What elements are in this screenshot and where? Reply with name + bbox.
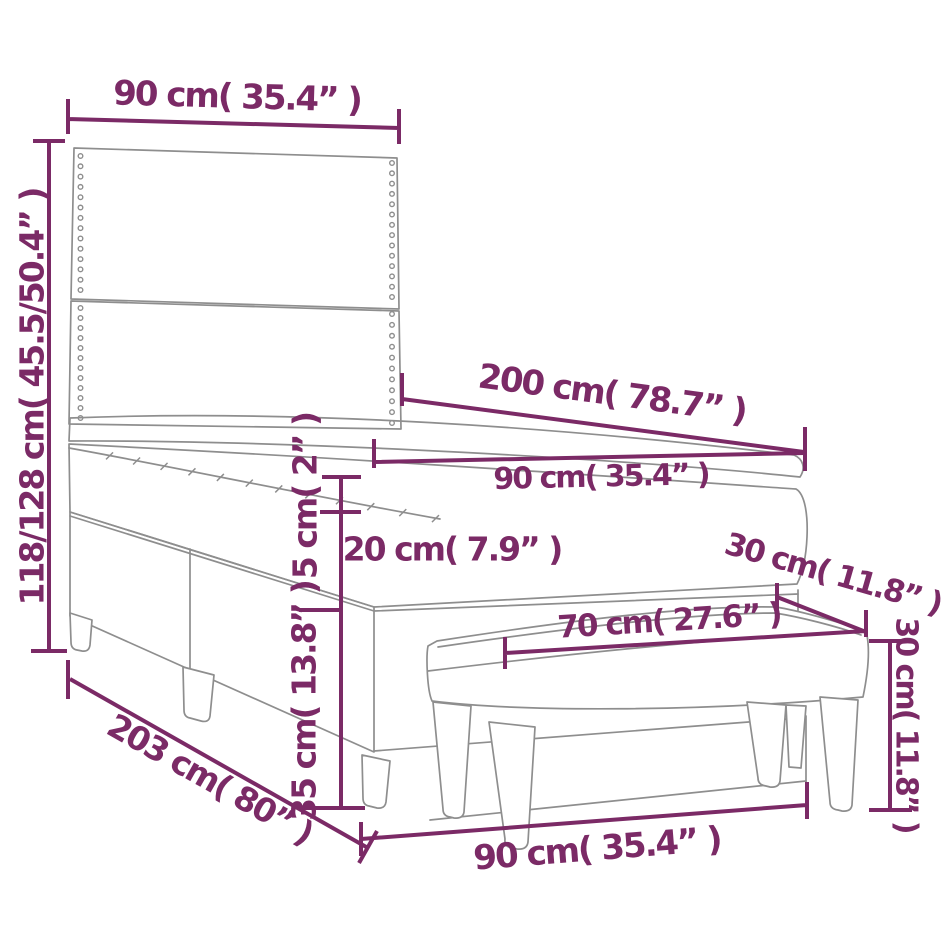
bed-leg-middle (183, 667, 214, 721)
base-floor-edge (430, 781, 806, 820)
bench-front-right-leg (747, 702, 786, 787)
bench-height-label: 30 cm( 11.8” ) (889, 617, 924, 833)
headboard-stud-dots (78, 154, 394, 426)
bed-leg-front (362, 755, 390, 808)
headboard-upper-panel (71, 148, 399, 309)
bed-leg-left (70, 613, 92, 651)
bench-front-left-leg (433, 702, 471, 818)
headboard-lower-panel (69, 301, 401, 429)
base-height-label: 35 cm( 13.8” ) (285, 581, 324, 821)
bed-length-label: 200 cm( 78.7” ) (476, 356, 748, 431)
topper-thickness-label: 5 cm( 2” ) (286, 413, 325, 579)
bed-dimension-drawing: 90 cm( 35.4” ) 118/128 cm( 45.5/50.4” ) … (0, 0, 947, 947)
headboard-width-label: 90 cm( 35.4” ) (113, 73, 362, 120)
dimension-diagram: 90 cm( 35.4” ) 118/128 cm( 45.5/50.4” ) … (0, 0, 947, 947)
mattress-width-label: 90 cm( 35.4” ) (493, 457, 709, 497)
mattress-thickness-label: 20 cm( 7.9” ) (343, 530, 562, 569)
bench-back-right-leg (820, 697, 858, 811)
dim-base-length-line (68, 660, 377, 863)
bench-back-mid-leg (786, 705, 806, 768)
mattress-zipper-seam (69, 448, 440, 519)
total-height-label: 118/128 cm( 45.5/50.4” ) (13, 189, 52, 606)
